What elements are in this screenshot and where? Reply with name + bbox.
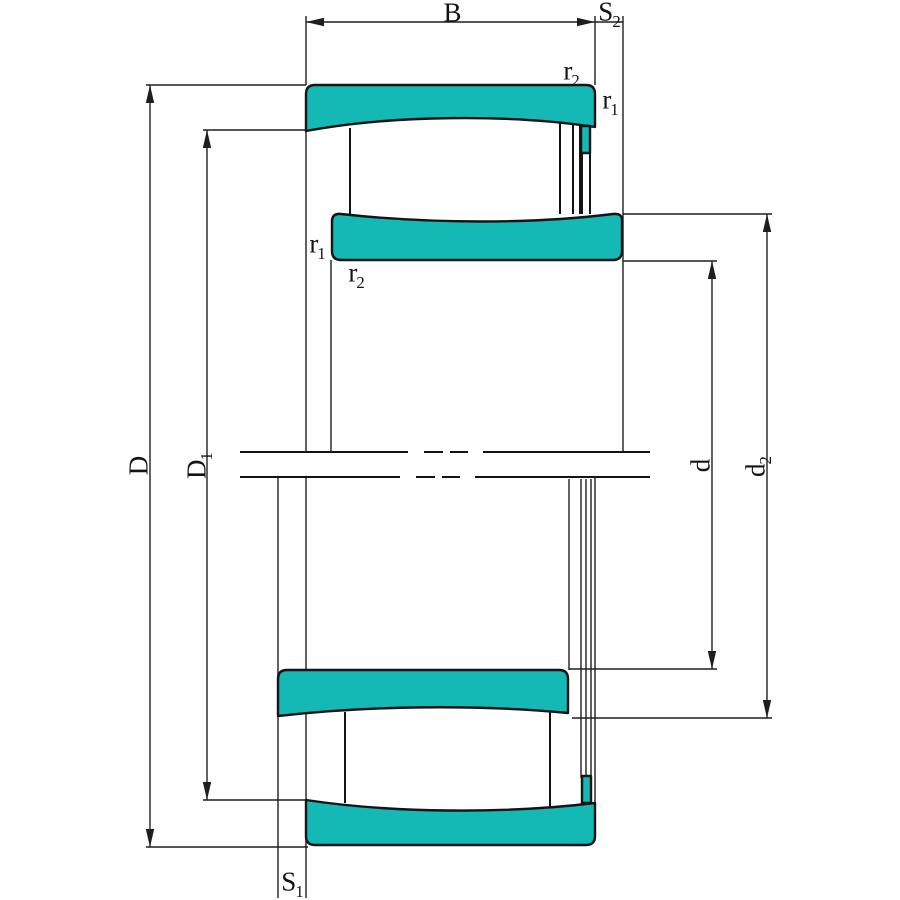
fillet-label-r2-inner: r2	[348, 260, 363, 287]
inner-ring-bottom	[278, 670, 568, 716]
dim-label-D: D	[126, 457, 153, 476]
bore-break-lines	[240, 452, 650, 477]
fillet-label-r1-inner: r1	[309, 231, 324, 258]
dim-label-d2: d2	[743, 457, 770, 477]
bearing-cross-section-drawing: B S2 r2 r1 r1 r2 D D1 d d2 S1	[0, 0, 900, 900]
dim-label-B: B	[443, 0, 460, 27]
roller-lines-top	[350, 123, 590, 215]
dimension-D	[146, 85, 308, 847]
mid-extension-lines-top	[306, 131, 331, 452]
cage-pin-bottom	[582, 776, 591, 803]
mid-extension-lines-bottom	[569, 477, 595, 802]
fillet-label-r1-outer: r1	[602, 87, 617, 114]
dim-label-S1: S1	[281, 869, 302, 896]
inner-ring-top	[332, 214, 622, 260]
fillet-label-r2-outer: r2	[563, 58, 578, 85]
dim-label-D1: D1	[184, 453, 211, 479]
outer-ring-top	[306, 85, 595, 131]
outer-ring-bottom	[306, 800, 595, 845]
dim-label-S2: S2	[598, 0, 619, 26]
dim-label-d: d	[688, 460, 715, 473]
bearing-drawing-canvas	[0, 0, 900, 900]
cage-pin-top	[581, 126, 590, 153]
roller-lines-bottom	[345, 710, 550, 807]
